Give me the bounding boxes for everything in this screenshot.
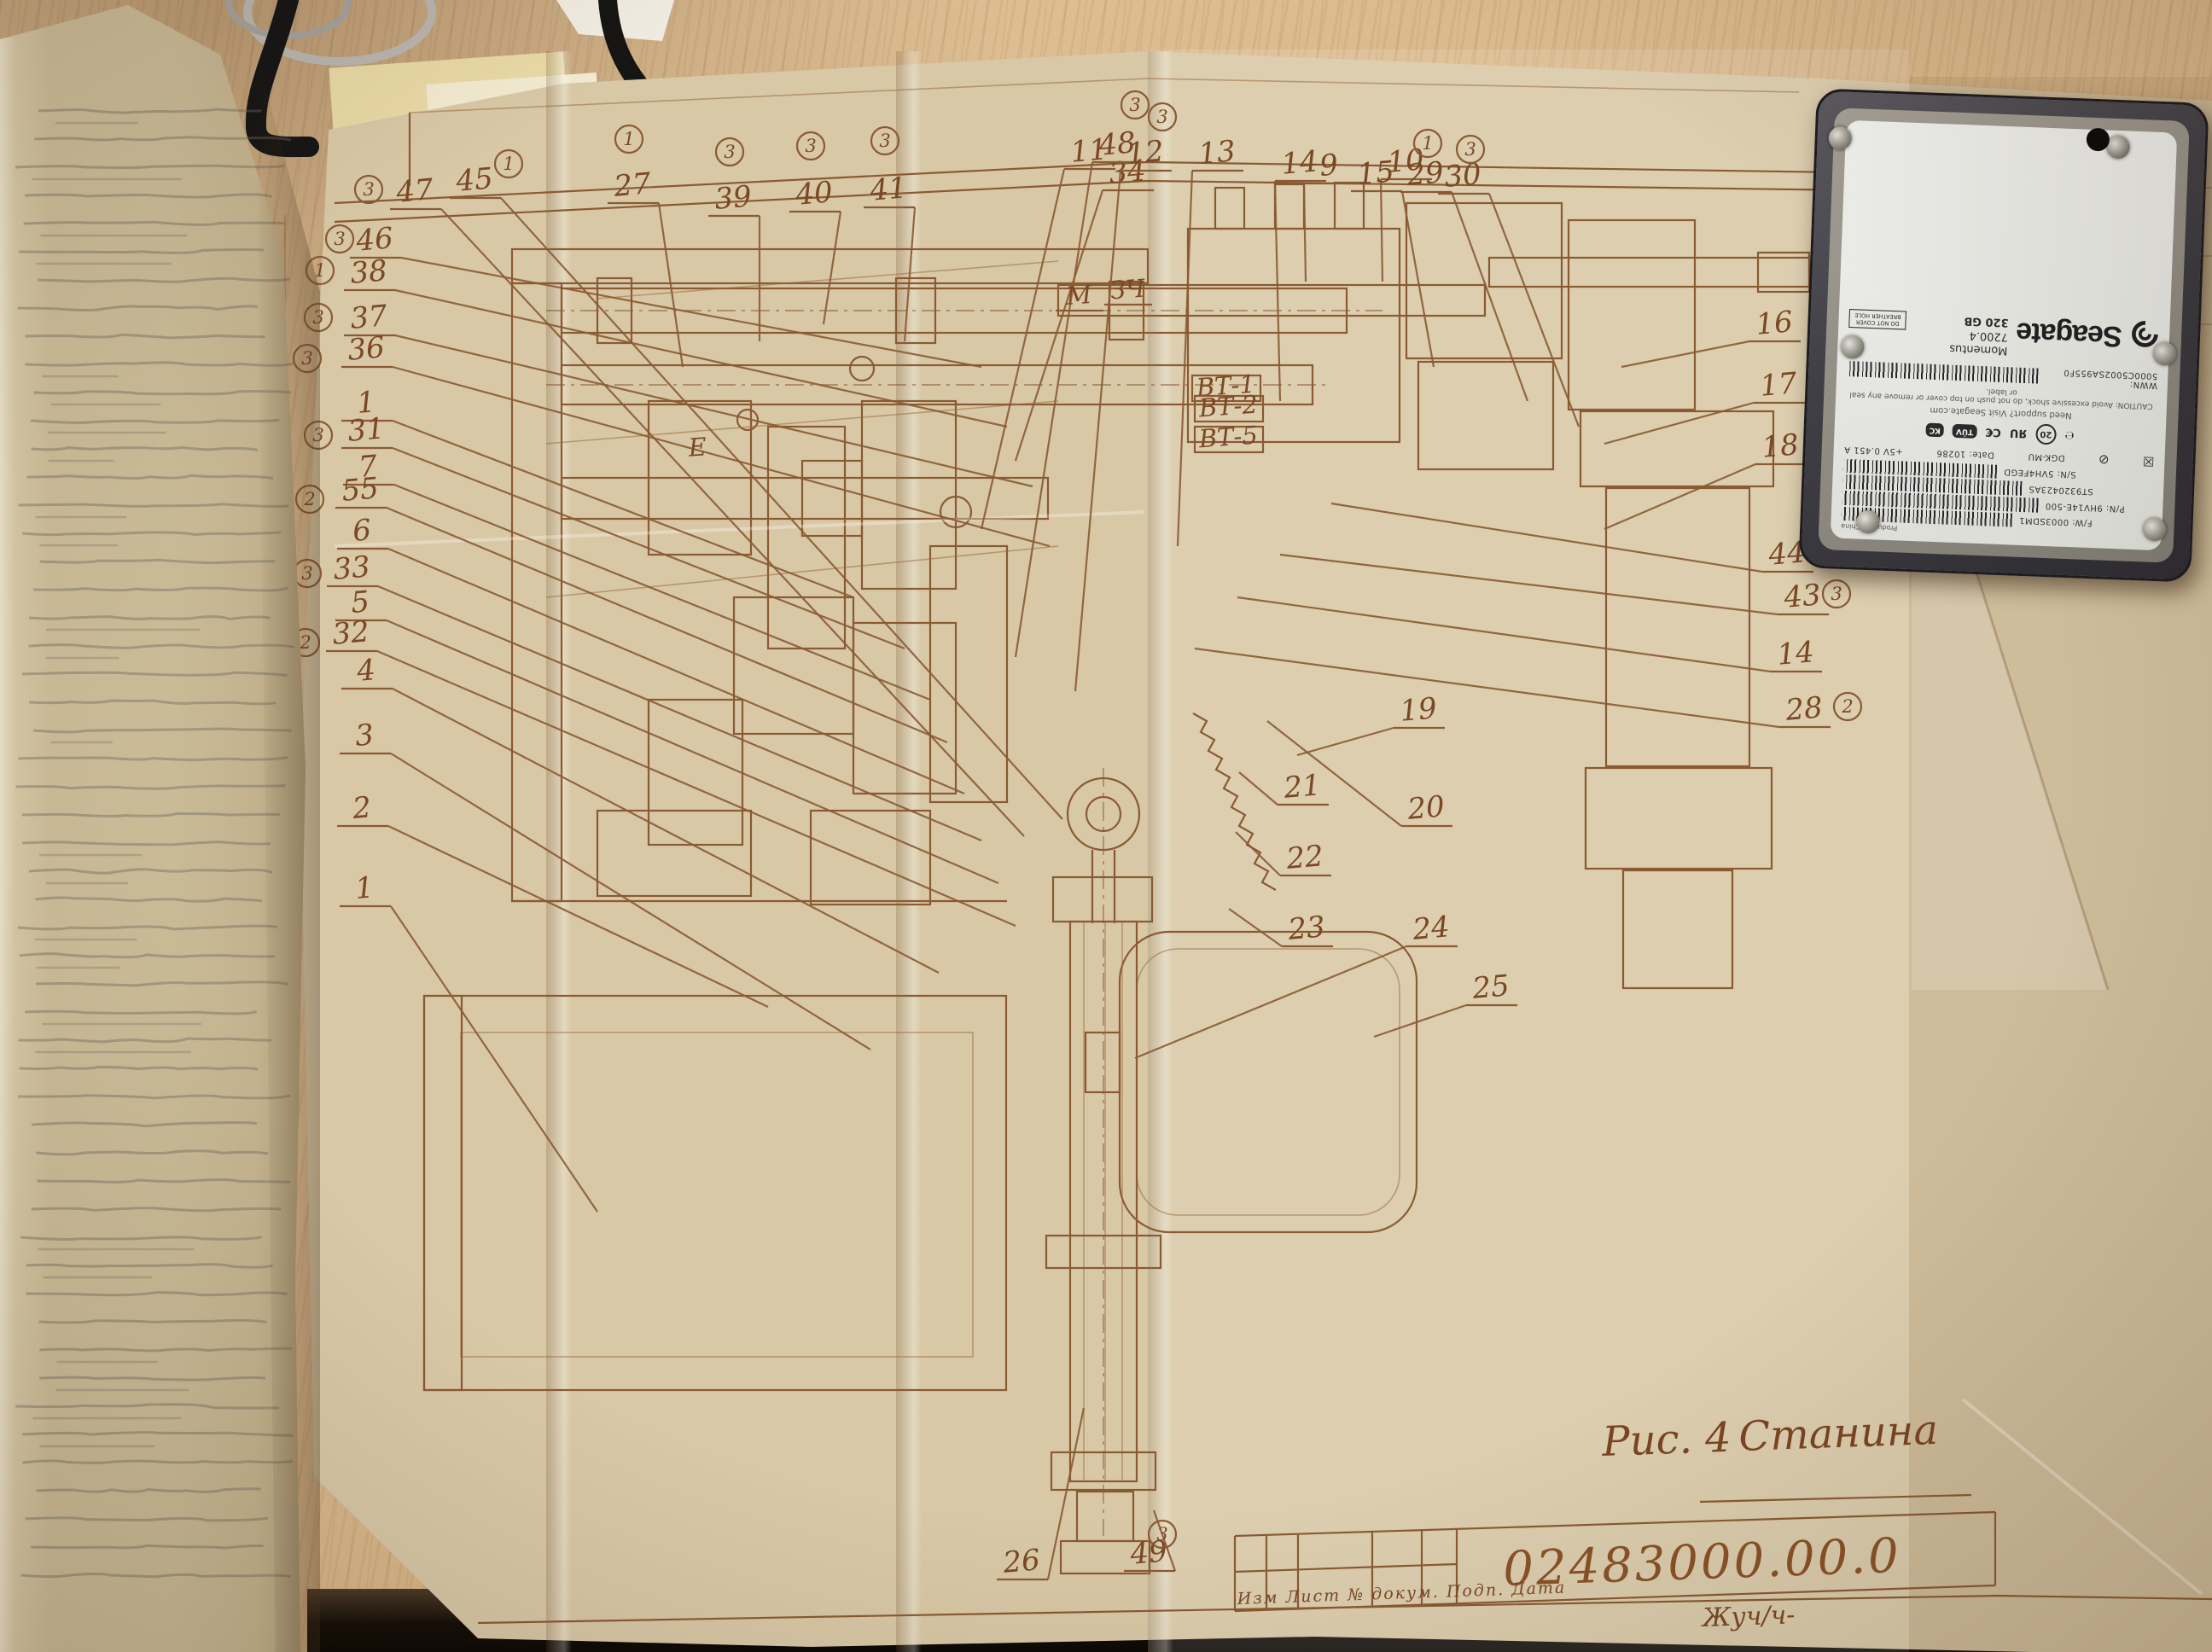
circled-mark: 1 bbox=[503, 154, 514, 174]
hdd-fw: F/W: 0003SDM1 bbox=[2018, 515, 2092, 527]
part-number: 40 bbox=[794, 175, 835, 212]
circled-mark: 3 bbox=[334, 229, 345, 249]
part-number: 28 bbox=[1784, 690, 1825, 728]
part-number: 16 bbox=[1755, 305, 1795, 342]
hdd-breather-warning: DO NOT COVER BREATHER HOLE bbox=[1848, 309, 1906, 330]
hdd-part: ST9320423AS bbox=[2029, 484, 2093, 496]
hdd-label-content: Product of China F/W: 0003SDM1 P/N: 9HV1… bbox=[1831, 120, 2178, 551]
part-number: 26 bbox=[1001, 1543, 1042, 1580]
inline-label: ВТ-5 bbox=[1197, 421, 1259, 454]
part-number: 31 bbox=[346, 411, 387, 449]
part-number: 13 bbox=[1197, 134, 1237, 172]
part-number: 46 bbox=[354, 221, 395, 259]
circled-mark: 3 bbox=[1156, 1524, 1167, 1544]
part-number: 2 bbox=[351, 790, 373, 826]
part-number: 47 bbox=[394, 172, 435, 210]
wee-bin-icon: ☒ bbox=[2143, 453, 2155, 469]
circled-mark: 3 bbox=[879, 131, 890, 151]
circled-mark: 3 bbox=[724, 142, 735, 162]
circled-mark: 3 bbox=[1464, 139, 1476, 160]
circled-mark: 3 bbox=[1156, 107, 1167, 127]
circled-mark: 3 bbox=[1129, 95, 1140, 115]
part-number: 25 bbox=[1470, 969, 1511, 1006]
part-number: 23 bbox=[1286, 910, 1327, 947]
part-number: 27 bbox=[612, 166, 653, 204]
part-number: 6 bbox=[352, 513, 373, 549]
hdd-site: DGK-MU bbox=[2028, 452, 2065, 463]
part-number: 22 bbox=[1284, 839, 1325, 876]
circled-mark: 3 bbox=[805, 136, 816, 156]
part-number: 1 bbox=[354, 870, 375, 906]
barcode bbox=[1847, 361, 2039, 384]
part-number: 15 bbox=[1356, 154, 1396, 192]
title-block-note: Жуч/ч- bbox=[1700, 1600, 1796, 1633]
part-number: 33 bbox=[332, 550, 372, 587]
inline-label: Е bbox=[687, 432, 707, 462]
no-touch-icon: ⊘ bbox=[2098, 451, 2110, 467]
hdd-power: +5V 0.451 A bbox=[1844, 445, 1903, 457]
part-number: 12 bbox=[1126, 134, 1166, 172]
part-number: 45 bbox=[454, 161, 495, 199]
part-number: 14 bbox=[1280, 144, 1320, 182]
hdd-sn: S/N: 5VH4FEGD bbox=[2004, 468, 2076, 480]
cert-mark-icon: 20 bbox=[2035, 424, 2057, 445]
part-number: 55 bbox=[341, 471, 381, 509]
circled-mark: 1 bbox=[623, 129, 634, 149]
circled-mark: 3 bbox=[1831, 584, 1842, 604]
part-number: 30 bbox=[1443, 157, 1483, 195]
part-number: 39 bbox=[713, 179, 754, 217]
cert-mark-icon: C€ bbox=[1985, 426, 2001, 439]
title-block: 02483000.00.0 Изм Лист № докум. Подп. Да… bbox=[1235, 1406, 1995, 1633]
part-number: 43 bbox=[1782, 578, 1823, 615]
inline-label: М bbox=[1064, 280, 1093, 311]
part-number: 18 bbox=[1761, 428, 1801, 465]
figure-caption-title: Станина bbox=[1738, 1406, 1938, 1461]
part-number: 32 bbox=[331, 614, 371, 652]
hdd-model: Momentus 7200.4 bbox=[1914, 325, 2009, 357]
cert-mark-icon: KC bbox=[1925, 423, 1944, 438]
part-number: 3 bbox=[354, 718, 375, 753]
cert-mark-icon: ℮ bbox=[2064, 428, 2075, 441]
photo-scene: 4734514633813733631313755263335322432127… bbox=[0, 0, 2212, 1652]
part-number: 14 bbox=[1776, 635, 1816, 672]
part-number: 19 bbox=[1399, 691, 1439, 729]
part-number: 9 bbox=[1318, 148, 1340, 183]
hdd-pn: P/N: 9HV14E-500 bbox=[2045, 501, 2125, 514]
inline-label: ЗЧ bbox=[1109, 274, 1146, 305]
part-number: 38 bbox=[349, 253, 389, 291]
part-number: 17 bbox=[1759, 366, 1799, 404]
figure-caption-fig: Рис. 4 bbox=[1600, 1414, 1732, 1466]
part-number: 24 bbox=[1411, 910, 1452, 947]
circled-mark: 3 bbox=[363, 179, 374, 200]
part-number: 21 bbox=[1282, 768, 1323, 806]
part-number: 4 bbox=[355, 653, 377, 689]
hdd-brand: Seagate bbox=[2016, 316, 2122, 353]
hdd-wwn: WWN: 5000C5002SA955F0 bbox=[2045, 367, 2157, 390]
part-number: 20 bbox=[1406, 789, 1447, 827]
cert-mark-icon: ЯU bbox=[2010, 427, 2028, 440]
circled-mark: 2 bbox=[1841, 696, 1853, 717]
inline-label: ВТ-2 bbox=[1197, 390, 1259, 423]
circled-mark: 1 bbox=[1422, 133, 1433, 154]
hdd-date: Date: 10286 bbox=[1936, 449, 1994, 461]
cert-mark-icon: TÜV bbox=[1953, 424, 1977, 439]
part-number: 41 bbox=[868, 171, 909, 208]
part-number: 29 bbox=[1405, 155, 1446, 193]
part-number: 36 bbox=[346, 330, 387, 368]
hard-drive: Product of China F/W: 0003SDM1 P/N: 9HV1… bbox=[1798, 88, 2209, 582]
hdd-label: Product of China F/W: 0003SDM1 P/N: 9HV1… bbox=[1831, 120, 2178, 551]
